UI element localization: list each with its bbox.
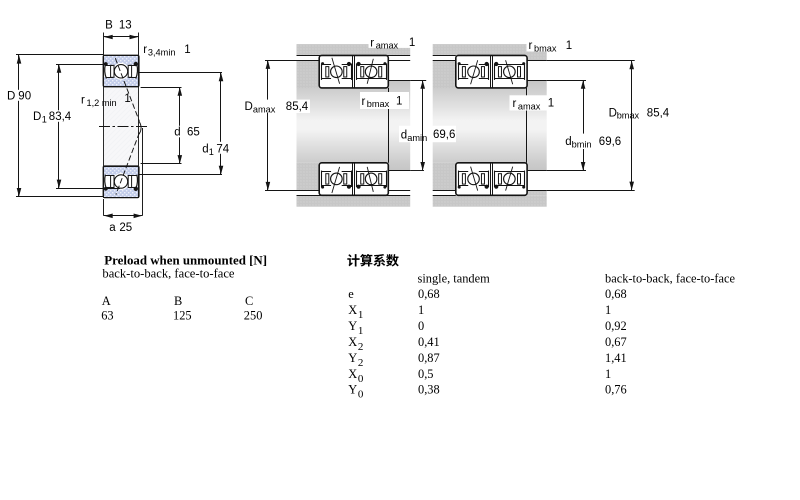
svg-text:1: 1 [418, 303, 424, 317]
svg-text:1: 1 [358, 325, 364, 337]
svg-text:A: A [102, 294, 111, 308]
svg-text:85,4: 85,4 [647, 107, 670, 119]
svg-text:2: 2 [358, 341, 364, 353]
svg-text:1: 1 [548, 98, 554, 110]
svg-text:bmax: bmax [617, 111, 640, 121]
svg-text:D: D [245, 101, 253, 113]
svg-text:amin: amin [407, 133, 427, 143]
svg-text:amax: amax [376, 41, 399, 51]
svg-text:d: d [174, 127, 180, 139]
svg-text:Y: Y [348, 383, 357, 397]
svg-text:63: 63 [101, 309, 113, 323]
svg-text:0,87: 0,87 [418, 351, 440, 365]
svg-text:B: B [105, 20, 113, 32]
svg-text:65: 65 [187, 127, 200, 139]
svg-text:r: r [370, 37, 374, 49]
svg-text:1: 1 [566, 40, 572, 52]
svg-text:74: 74 [216, 144, 229, 156]
svg-text:1: 1 [605, 303, 611, 317]
svg-text:0,68: 0,68 [418, 287, 440, 301]
svg-text:Y: Y [348, 319, 357, 333]
svg-text:25: 25 [119, 222, 132, 234]
svg-text:0: 0 [358, 389, 364, 401]
svg-text:X: X [348, 335, 357, 349]
svg-text:0,38: 0,38 [418, 383, 440, 397]
svg-text:bmax: bmax [534, 44, 557, 54]
svg-text:1: 1 [605, 367, 611, 381]
svg-text:back-to-back, face-to-face: back-to-back, face-to-face [605, 272, 736, 286]
svg-text:0,5: 0,5 [418, 367, 434, 381]
svg-text:0: 0 [358, 373, 364, 385]
svg-text:C: C [245, 294, 253, 308]
svg-text:1: 1 [358, 309, 364, 321]
svg-text:a: a [109, 222, 116, 234]
svg-text:90: 90 [18, 90, 31, 102]
svg-text:r: r [143, 44, 147, 56]
svg-text:bmin: bmin [572, 139, 592, 149]
svg-text:83,4: 83,4 [49, 111, 72, 123]
svg-text:D: D [7, 90, 15, 102]
svg-text:r: r [529, 40, 533, 52]
svg-text:69,6: 69,6 [599, 136, 621, 148]
svg-text:2: 2 [358, 357, 364, 369]
svg-text:d: d [401, 130, 407, 142]
svg-text:r: r [81, 94, 85, 106]
svg-text:1,2 min: 1,2 min [87, 98, 117, 108]
svg-text:1: 1 [184, 44, 190, 56]
svg-text:bmax: bmax [367, 99, 390, 109]
svg-text:D: D [33, 111, 41, 123]
svg-text:r: r [362, 96, 366, 108]
svg-text:1: 1 [409, 37, 415, 49]
svg-text:125: 125 [173, 309, 192, 323]
svg-text:69,6: 69,6 [433, 129, 455, 141]
svg-text:d: d [202, 144, 208, 156]
svg-text:Y: Y [348, 351, 357, 365]
svg-text:0,92: 0,92 [605, 319, 627, 333]
svg-text:D: D [609, 107, 617, 119]
svg-text:0: 0 [418, 319, 424, 333]
svg-text:Preload when unmounted [N]: Preload when unmounted [N] [104, 253, 267, 267]
svg-text:0,41: 0,41 [418, 335, 440, 349]
svg-text:0,68: 0,68 [605, 287, 627, 301]
svg-text:amax: amax [253, 104, 276, 114]
svg-text:250: 250 [244, 309, 263, 323]
svg-text:13: 13 [119, 20, 132, 32]
svg-text:0,67: 0,67 [605, 335, 627, 349]
svg-text:85,4: 85,4 [286, 101, 309, 113]
svg-text:B: B [174, 294, 182, 308]
svg-text:X: X [348, 303, 357, 317]
svg-text:single, tandem: single, tandem [418, 272, 491, 286]
svg-text:amax: amax [518, 101, 541, 111]
svg-text:r: r [513, 98, 517, 110]
svg-text:X: X [348, 367, 357, 381]
svg-text:0,76: 0,76 [605, 383, 627, 397]
svg-text:3,4min: 3,4min [148, 48, 176, 58]
svg-text:1: 1 [396, 96, 402, 108]
svg-text:1,41: 1,41 [605, 351, 627, 365]
svg-text:e: e [348, 287, 354, 301]
svg-text:back-to-back, face-to-face: back-to-back, face-to-face [102, 267, 235, 281]
svg-text:1: 1 [209, 147, 214, 157]
svg-text:1: 1 [42, 115, 47, 125]
svg-text:1: 1 [124, 93, 130, 105]
